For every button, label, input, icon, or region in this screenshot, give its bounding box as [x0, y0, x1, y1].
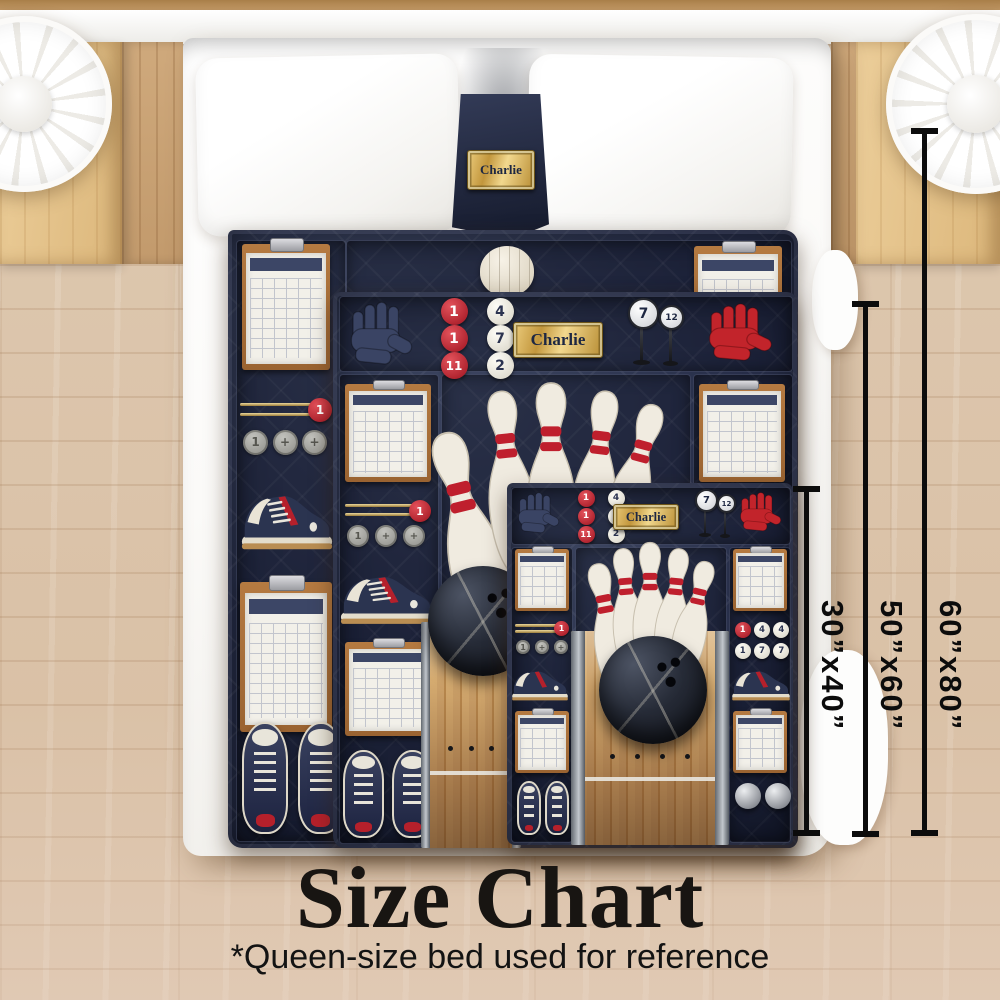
- rack-ball: 1: [554, 621, 569, 636]
- score-sheet-paper: [245, 593, 328, 725]
- score-sheet-paper: [349, 649, 426, 732]
- marker-base: [633, 360, 650, 365]
- bowling-shoe-side-icon: [511, 667, 569, 703]
- rack-bar: [240, 413, 317, 416]
- coin-row: 1 + +: [347, 524, 425, 548]
- boule-balls: [735, 781, 791, 811]
- plaque-text: Charlie: [531, 330, 586, 350]
- shoe-top-view: [242, 722, 288, 834]
- glove-red-icon: [735, 490, 791, 532]
- bowling-ball-icon: [599, 636, 707, 744]
- coin-row: 1 + +: [516, 639, 568, 655]
- pillow-right: [526, 54, 793, 237]
- plaque-text: Charlie: [626, 510, 666, 525]
- score-button: 7: [773, 643, 789, 659]
- pin-deck-markers: 7 12: [627, 298, 687, 368]
- dimension-line-30x40: [804, 486, 809, 836]
- score-sheet-paper: [246, 253, 325, 364]
- scoreboard-button: 2: [487, 352, 514, 379]
- coin-row: 1 + +: [243, 428, 327, 456]
- ball-rack: 1: [345, 500, 431, 522]
- dimension-label-50x60: 50”x60”: [873, 600, 909, 731]
- scoreboard-button: 1: [441, 298, 468, 325]
- score-sheet-clipboard: [699, 384, 785, 482]
- pin-deck-markers: 7 12: [695, 489, 735, 539]
- bowling-shoe-side-icon: [339, 570, 435, 628]
- scoreboard-button: 7: [487, 325, 514, 352]
- score-button: 7: [754, 643, 770, 659]
- score-sheet-paper: [518, 553, 567, 608]
- coin-button: +: [273, 430, 298, 455]
- scoreboard-button: 11: [441, 352, 468, 379]
- scoreboard-buttons: 1 4 1 7 11 2: [431, 298, 523, 370]
- scoreboard-button: 11: [578, 526, 595, 543]
- lane-gutter: [715, 631, 729, 845]
- bowling-shoe-side-icon: [240, 488, 334, 554]
- scoreboard-button: 4: [487, 298, 514, 325]
- bowling-shoes-pair-icon: [242, 722, 344, 834]
- name-plaque: Charlie: [513, 322, 603, 358]
- score-sheet-paper: [736, 553, 785, 608]
- score-button: 1: [735, 643, 751, 659]
- marker-base: [663, 361, 678, 366]
- rack-bar: [240, 403, 317, 406]
- lane-foul-line: [430, 771, 512, 775]
- scoreboard-button: 1: [578, 490, 595, 507]
- lane-pin-spots: [433, 744, 509, 752]
- silver-ball-icon: [765, 783, 791, 809]
- duvet-overhang-top: [812, 250, 858, 350]
- plaque-text: Charlie: [480, 162, 522, 178]
- size-chart-title: Size Chart: [0, 848, 1000, 949]
- score-sheet-paper: [518, 715, 567, 770]
- glove-red-icon: [701, 300, 787, 362]
- shoe-top-view: [343, 750, 384, 838]
- silver-ball-icon: [735, 783, 761, 809]
- reference-note: *Queen-size bed used for reference: [0, 938, 1000, 977]
- coin-button: +: [535, 640, 549, 654]
- coin-button: +: [403, 525, 425, 547]
- bowling-shoes-pair-icon: [517, 781, 569, 835]
- dimension-line-50x60: [863, 301, 868, 837]
- score-sheet-clipboard: [515, 549, 569, 611]
- coin-button: +: [302, 430, 327, 455]
- ball-rack: 1: [515, 621, 569, 637]
- rack-bar: [345, 504, 417, 507]
- score-sheet-clipboard: [242, 244, 330, 370]
- lane-foul-line: [585, 777, 715, 781]
- bowling-shoes-pair-icon: [343, 750, 433, 838]
- score-button: 4: [773, 622, 789, 638]
- glove-navy-icon: [343, 298, 427, 366]
- score-sheet-clipboard: [515, 711, 569, 773]
- marker-base: [720, 534, 730, 538]
- shoe-top-view: [517, 781, 541, 835]
- quilt-small-30x40: 1 4 1 7 11 2 Charlie 7 12: [507, 483, 793, 845]
- score-sheet-paper: [736, 715, 785, 770]
- floor-strip-left: [122, 42, 183, 264]
- score-button: 1: [735, 622, 751, 638]
- coin-button: 1: [516, 640, 530, 654]
- lane-gutter: [571, 631, 585, 845]
- glove-navy-icon: [513, 490, 569, 534]
- score-sheet-clipboard: [345, 642, 431, 736]
- name-plaque: Charlie: [467, 150, 535, 190]
- dimension-label-60x80: 60”x80”: [932, 600, 968, 731]
- score-sheet-clipboard: [240, 582, 332, 732]
- size-chart-scene: Charlie 1 1 + +: [0, 0, 1000, 1000]
- lane-pin-spots: [590, 753, 710, 761]
- dimension-label-30x40: 30”x40”: [814, 600, 850, 731]
- dimension-line-60x80: [922, 128, 927, 836]
- coin-button: +: [554, 640, 568, 654]
- scoreboard-button: 1: [578, 508, 595, 525]
- score-sheet-clipboard: [733, 711, 787, 773]
- pin-deck-marker: 12: [659, 305, 684, 330]
- rack-ball: 1: [308, 398, 332, 422]
- rack-bar: [345, 513, 417, 516]
- white-ball-patch: [480, 246, 534, 296]
- scoreboard-button: 1: [441, 325, 468, 352]
- marker-base: [699, 533, 711, 537]
- score-buttons: 1 4 4 1 7 7: [733, 619, 791, 661]
- pin-deck-marker: 7: [695, 489, 718, 512]
- shoe-top-view: [545, 781, 569, 835]
- bowling-shoe-side-icon: [731, 667, 791, 703]
- name-plaque: Charlie: [613, 504, 679, 530]
- score-sheet-paper: [703, 391, 780, 477]
- floor-strip-right: [831, 42, 856, 264]
- coin-button: +: [375, 525, 397, 547]
- pin-deck-marker: 12: [717, 494, 736, 513]
- lane-gutter: [421, 622, 430, 848]
- coin-button: 1: [347, 525, 369, 547]
- ball-rack: 1: [240, 398, 332, 424]
- pin-deck-marker: 7: [628, 298, 659, 329]
- coin-button: 1: [243, 430, 268, 455]
- score-sheet-clipboard: [733, 549, 787, 611]
- pillow-left: [195, 53, 461, 236]
- score-button: 4: [754, 622, 770, 638]
